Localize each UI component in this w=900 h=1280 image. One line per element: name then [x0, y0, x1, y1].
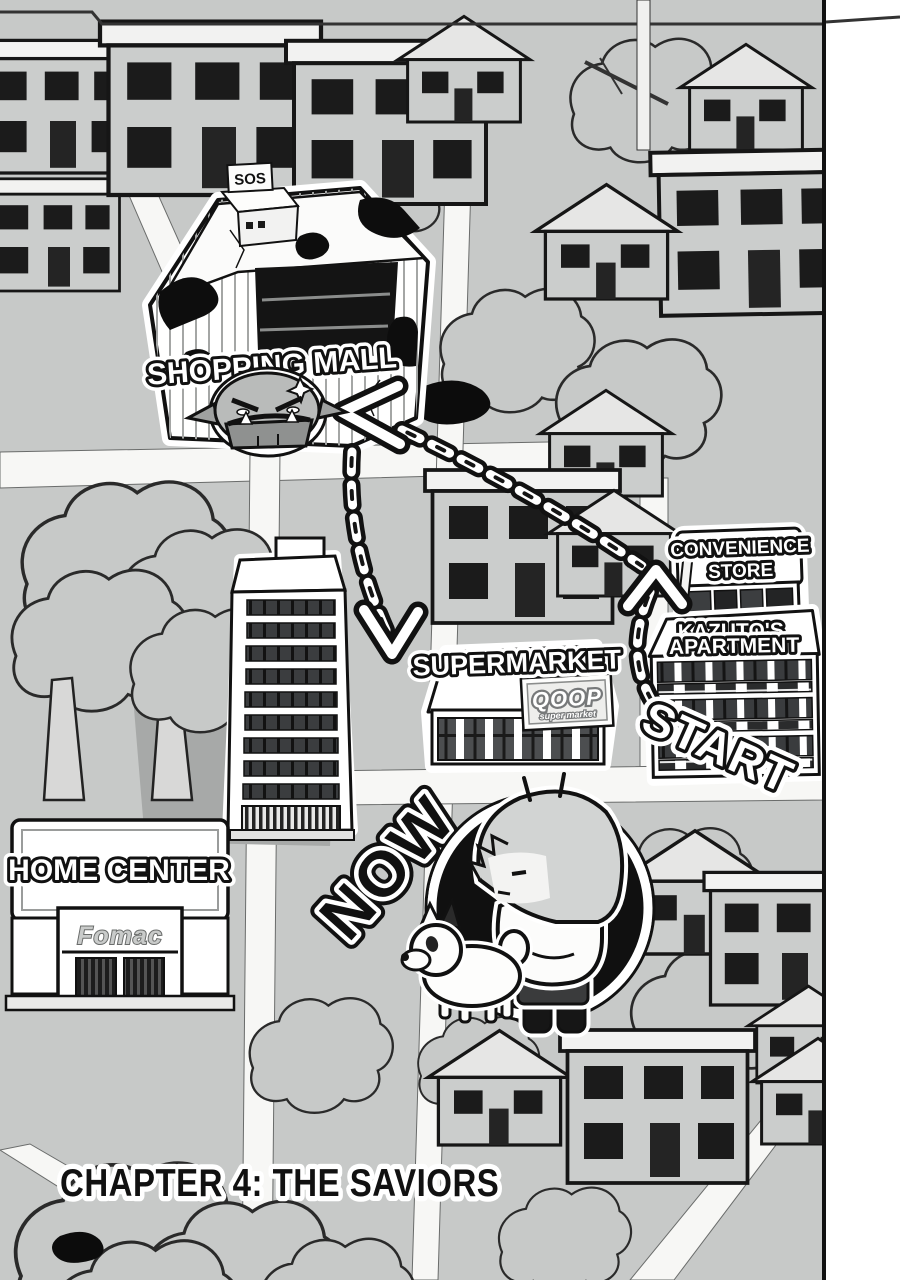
fomac-brand-text: Fomac	[77, 922, 163, 950]
svg-text:HOME CENTER: HOME CENTER	[8, 854, 230, 887]
tower-windows	[243, 600, 339, 799]
manga-page: SOS QOOP super market	[0, 0, 900, 1280]
home-center-building: Fomac HOME CENTER HOME CENTER HOME CENTE…	[6, 820, 234, 1010]
page-margin	[826, 0, 900, 1280]
home-center-door-right	[124, 958, 164, 996]
home-center-label: HOME CENTER HOME CENTER HOME CENTER	[8, 854, 230, 887]
tower-entrance	[242, 806, 340, 830]
qoop-sign: QOOP super market	[521, 674, 614, 731]
panel-border	[822, 0, 826, 1280]
chapter-title: CHAPTER 4: THE SAVIORS CHAPTER 4: THE SA…	[60, 1160, 499, 1204]
svg-text:STORE: STORE	[708, 560, 774, 583]
svg-text:APARTMENT: APARTMENT	[669, 634, 800, 659]
kazutos-apartment-label: KAZUTO'S KAZUTO'S KAZUTO'S APARTMENT APA…	[668, 619, 799, 659]
sos-sign-text: SOS	[234, 170, 267, 189]
home-center-door-left	[76, 958, 116, 996]
map-art: SOS QOOP super market	[0, 0, 900, 1280]
tower-building	[228, 538, 354, 840]
supermarket-building: QOOP super market SUPERMARKET SUPERMARKE…	[412, 644, 622, 766]
utility-pole	[637, 0, 650, 150]
svg-text:CHAPTER 4: THE SAVIORS: CHAPTER 4: THE SAVIORS	[60, 1160, 499, 1204]
